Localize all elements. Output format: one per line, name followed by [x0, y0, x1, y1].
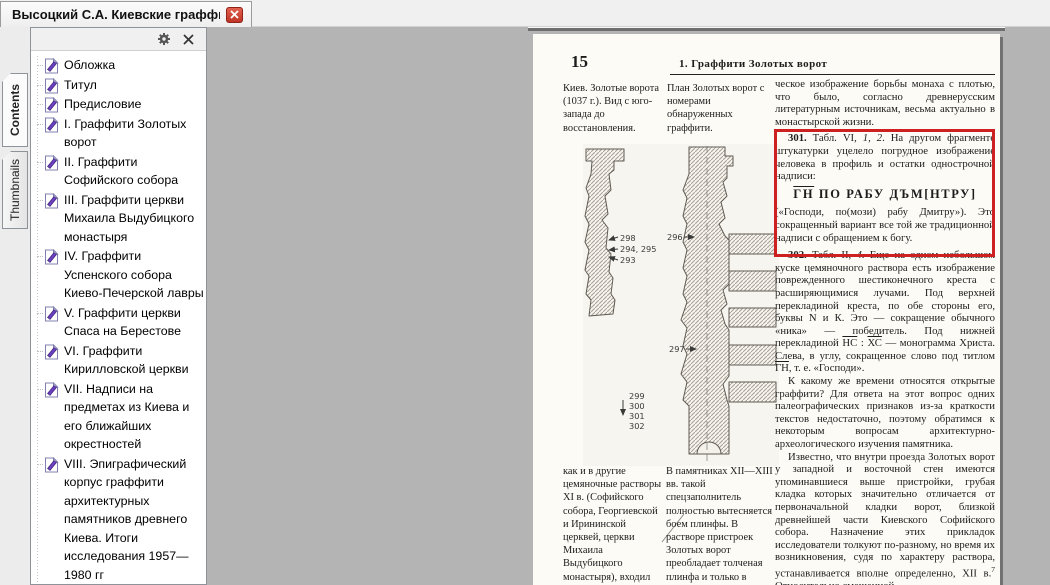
page-icon: [44, 249, 59, 265]
document-tab[interactable]: Высоцкий С.А. Киевские граффити Х...: [0, 1, 252, 27]
page-icon: [44, 306, 59, 322]
plan-label-300: 300: [629, 401, 645, 411]
caption-mortar-right: В памятниках XII—XIII вв. такой спецзапо…: [666, 465, 778, 585]
page-icon: [44, 382, 59, 398]
document-view[interactable]: 15 1. Граффити Золотых ворот Киев. Золот…: [207, 27, 1050, 585]
toc-item-title[interactable]: Титул: [43, 76, 204, 95]
plan-label-296: 296: [667, 232, 683, 242]
paragraph-continuation: ческое изображение борьбы монаха с плоть…: [775, 78, 995, 128]
page-icon: [44, 457, 59, 473]
sidebar-tab-thumbnails-label: Thumbnails: [8, 159, 22, 221]
toc-item-ch1[interactable]: I. Граффити Золотых ворот: [43, 115, 204, 152]
toc-item-cover[interactable]: Обложка: [43, 56, 204, 75]
settings-gear-icon[interactable]: [156, 31, 172, 47]
tab-close-button[interactable]: [226, 7, 243, 23]
graffiti-inscription: ГН ПО РАБУ ДЪМ[НТРУ]: [775, 188, 995, 201]
page-icon: [44, 344, 59, 360]
book-page: 15 1. Граффити Золотых ворот Киев. Золот…: [533, 34, 1000, 585]
contents-panel-header: [31, 28, 206, 51]
golden-gate-plan-figure: 298 294, 295 293 296 297 299 300 301 302: [583, 144, 779, 466]
toc-item-ch8[interactable]: VIII. Эпиграфический корпус граффити арх…: [43, 455, 204, 585]
caption-plan: План Золотых ворот с номерами обнаруженн…: [667, 82, 769, 135]
toc-item-preface[interactable]: Предисловие: [43, 95, 204, 114]
previous-page-edge: [528, 27, 1005, 31]
page-icon: [44, 117, 59, 133]
toc-item-ch3[interactable]: III. Граффити церкви Михаила Выдубицкого…: [43, 191, 204, 247]
main-text-column: ческое изображение борьбы монаха с плоть…: [775, 78, 995, 585]
toc-item-ch4[interactable]: IV. Граффити Успенского собора Киево-Печ…: [43, 247, 204, 303]
paragraph-known: Известно, что внутри проезда Золотых вор…: [775, 451, 995, 585]
paragraph-dating: К какому же времени относятся открытые г…: [775, 375, 995, 451]
plan-label-293: 293: [620, 255, 636, 265]
plan-label-294-295: 294, 295: [620, 244, 656, 254]
sidebar-tab-contents-label: Contents: [8, 84, 22, 136]
paragraph-301: 301. Табл. VI, 1, 2. На другом фрагменте…: [775, 132, 995, 182]
page-number: 15: [571, 52, 588, 72]
toc-item-ch2[interactable]: II. Граффити Софийского собора: [43, 153, 204, 190]
sidebar-tab-thumbnails[interactable]: Thumbnails: [2, 151, 28, 229]
plan-label-299: 299: [629, 391, 645, 401]
page-icon: [44, 155, 59, 171]
plan-label-297: 297: [669, 344, 685, 354]
running-head: 1. Граффити Золотых ворот: [679, 58, 827, 70]
paragraph-transcription: («Господи, по(мози) рабу Дмитру»). Это с…: [775, 206, 995, 244]
table-of-contents: Обложка Титул Предисловие I. Граффити Зо…: [31, 51, 206, 585]
page-icon: [44, 78, 59, 94]
plan-label-298: 298: [620, 233, 636, 243]
sidebar-tab-contents[interactable]: Contents: [2, 73, 28, 147]
toc-item-ch5[interactable]: V. Граффити церкви Спаса на Берестове: [43, 304, 204, 341]
sidebar-tab-strip: Contents Thumbnails: [0, 27, 30, 585]
running-head-rule: [670, 74, 995, 75]
window-tab-bar: Высоцкий С.А. Киевские граффити Х...: [0, 0, 1050, 27]
page-icon: [44, 193, 59, 209]
sidebar-close-icon[interactable]: [180, 31, 196, 47]
plan-label-301: 301: [629, 411, 645, 421]
toc-item-ch7[interactable]: VII. Надписи на предметах из Киева и его…: [43, 380, 204, 454]
caption-mortar-left: как и в другие цемяночные растворы XI в.…: [563, 465, 663, 585]
toc-item-ch6[interactable]: VI. Граффити Кирилловской церкви: [43, 342, 204, 379]
document-tab-title: Высоцкий С.А. Киевские граффити Х...: [12, 7, 220, 22]
caption-golden-gate-view: Киев. Золотые ворота (1037 г.). Вид с юг…: [563, 82, 667, 135]
plan-label-302: 302: [629, 421, 645, 431]
page-icon: [44, 97, 59, 113]
page-icon: [44, 58, 59, 74]
contents-panel: Обложка Титул Предисловие I. Граффити Зо…: [30, 27, 207, 585]
close-icon: [230, 10, 239, 19]
paragraph-302: 302. Табл. II, 4. Еще на одном небольшом…: [775, 249, 995, 375]
